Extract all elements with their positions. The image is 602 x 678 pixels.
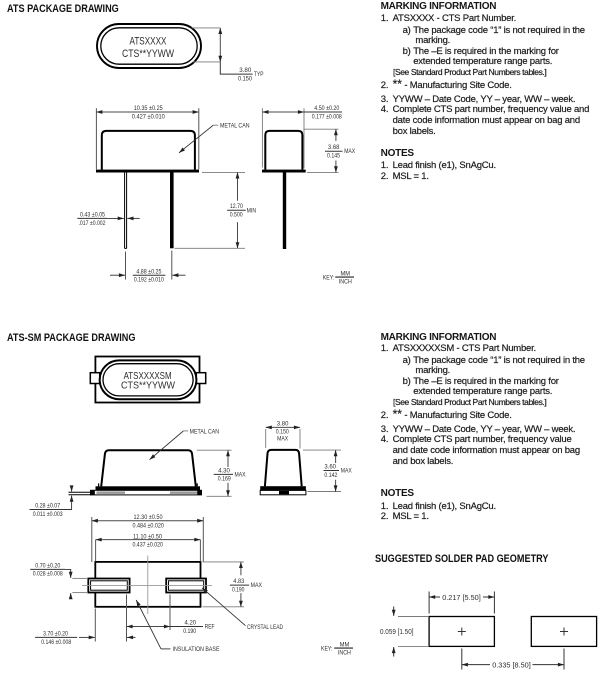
svg-text:12.70: 12.70: [230, 203, 243, 210]
svg-text:3.70 ±0.20: 3.70 ±0.20: [43, 631, 68, 638]
svg-text:0.011 ±0.003: 0.011 ±0.003: [33, 511, 63, 518]
svg-text:4.83: 4.83: [233, 578, 244, 585]
svg-text:0.142: 0.142: [324, 472, 337, 479]
svg-text:3.60: 3.60: [324, 464, 336, 471]
svg-text:4.50 ±0.20: 4.50 ±0.20: [314, 105, 339, 112]
svg-text:REF: REF: [205, 624, 215, 631]
svg-text:MAX: MAX: [251, 582, 263, 589]
svg-text:CTS**YYWW: CTS**YYWW: [121, 380, 175, 392]
svg-text:0.70 ±0.20: 0.70 ±0.20: [35, 563, 60, 570]
svg-text:INSULATION BASE: INSULATION BASE: [173, 646, 220, 653]
svg-text:0.028 ±0.008: 0.028 ±0.008: [33, 571, 63, 578]
svg-text:4.20: 4.20: [185, 620, 197, 627]
svg-text:0.28 ±0.07: 0.28 ±0.07: [35, 503, 60, 510]
svg-text:0.335 [8.50]: 0.335 [8.50]: [492, 660, 531, 669]
svg-text:CRYSTAL LEAD: CRYSTAL LEAD: [247, 624, 283, 631]
svg-text:MAX: MAX: [344, 148, 356, 155]
svg-text:0.146 ±0.008: 0.146 ±0.008: [41, 639, 71, 646]
svg-text:MAX: MAX: [277, 435, 289, 442]
svg-text:METAL CAN: METAL CAN: [190, 428, 220, 435]
svg-text:MIN: MIN: [247, 207, 257, 214]
svg-text:MAX: MAX: [341, 468, 353, 475]
svg-text:INCH: INCH: [339, 278, 352, 285]
svg-text:TYP: TYP: [254, 71, 264, 78]
svg-text:0.437 ±0.020: 0.437 ±0.020: [132, 542, 163, 549]
svg-text:0.190: 0.190: [183, 628, 196, 635]
svg-text:0.169: 0.169: [218, 476, 231, 483]
svg-text:INCH: INCH: [338, 649, 351, 656]
svg-text:4.88 ±0.25: 4.88 ±0.25: [136, 268, 161, 275]
svg-text:MM: MM: [340, 641, 350, 648]
svg-text:0.190: 0.190: [232, 586, 245, 593]
svg-text:0.484 ±0.020: 0.484 ±0.020: [132, 522, 164, 529]
svg-text:3.68: 3.68: [328, 144, 340, 151]
svg-text:0.427 ±0.010: 0.427 ±0.010: [132, 113, 165, 120]
svg-text:3.80: 3.80: [277, 420, 289, 427]
svg-text:0.145: 0.145: [327, 153, 340, 160]
svg-text:0.217 [5.50]: 0.217 [5.50]: [442, 593, 481, 602]
svg-text:KEY:: KEY:: [323, 274, 335, 281]
svg-text:10.35 ±0.25: 10.35 ±0.25: [134, 105, 163, 112]
svg-text:0.059 [1.50]: 0.059 [1.50]: [380, 627, 414, 636]
svg-text:.017 ±0.002: .017 ±0.002: [79, 220, 106, 227]
svg-text:4.30: 4.30: [218, 467, 230, 474]
svg-text:METAL CAN: METAL CAN: [220, 123, 250, 130]
svg-text:MAX: MAX: [235, 472, 247, 479]
svg-text:0.177 ±0.008: 0.177 ±0.008: [312, 113, 342, 120]
svg-text:0.500: 0.500: [230, 212, 243, 219]
svg-text:12.30 ±0.50: 12.30 ±0.50: [134, 514, 163, 521]
svg-text:11.10 ±0.50: 11.10 ±0.50: [133, 533, 162, 540]
svg-text:KEY:: KEY:: [321, 645, 333, 652]
svg-text:0.192 ±0.010: 0.192 ±0.010: [134, 277, 164, 284]
svg-text:CTS**YYWW: CTS**YYWW: [122, 48, 174, 60]
svg-text:ATSXXXX: ATSXXXX: [130, 36, 167, 48]
svg-text:MM: MM: [341, 270, 351, 277]
svg-text:0.43 ±0.05: 0.43 ±0.05: [80, 212, 105, 219]
svg-text:0.150: 0.150: [238, 75, 252, 82]
svg-text:3.80: 3.80: [239, 67, 251, 74]
